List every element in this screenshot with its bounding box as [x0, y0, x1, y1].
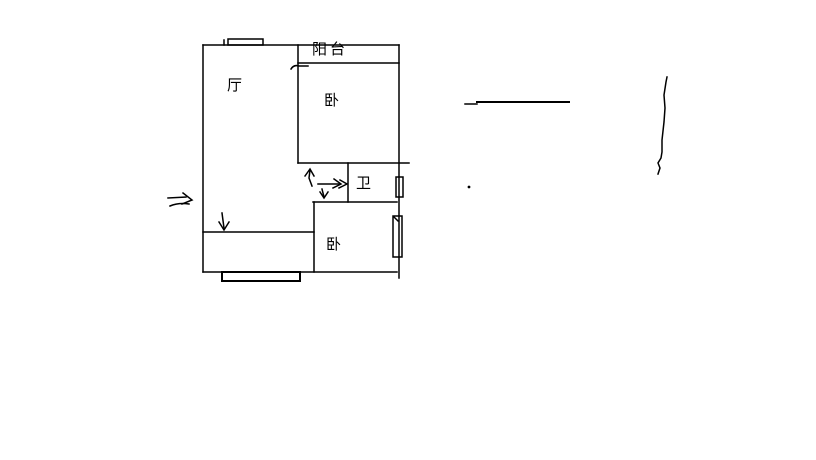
- living-room-label: 厅: [227, 77, 242, 94]
- arrow-down-living-room: [219, 213, 229, 230]
- entrance-arrow-top-stroke: [168, 197, 186, 198]
- entrance-arrow-head: [182, 193, 192, 204]
- window-right-rect: [393, 216, 402, 257]
- window-symbol-top: [224, 39, 263, 45]
- entrance-arrow: [168, 193, 192, 206]
- floor-plan-canvas: 阳台 厅 卧 卫 卧: [0, 0, 816, 460]
- bedroom-bottom-label: 卧: [326, 236, 341, 253]
- arrow-down-living-shaft: [222, 213, 224, 228]
- stray-dot: [468, 186, 471, 189]
- arrow-right-bathroom: [318, 179, 347, 188]
- window-bottom-rect: [222, 272, 300, 281]
- bedroom-top-label: 卧: [324, 92, 339, 109]
- window-top-rect: [228, 39, 263, 45]
- balcony-door-mark: [291, 66, 308, 69]
- bathroom-label: 卫: [356, 175, 371, 192]
- floor-plan-drawing: [0, 0, 816, 460]
- stray-marks: [465, 77, 667, 188]
- window-symbol-bottom: [222, 272, 300, 281]
- balcony-label: 阳台: [312, 41, 348, 58]
- stray-wavy-line: [658, 77, 667, 174]
- entrance-arrow-bottom-stroke: [170, 204, 189, 206]
- window-right-tick: [394, 217, 398, 221]
- arrow-up-hallway: [305, 169, 314, 186]
- window-symbol-right-bedroom: [393, 216, 402, 257]
- arrow-down-hallway: [320, 189, 328, 198]
